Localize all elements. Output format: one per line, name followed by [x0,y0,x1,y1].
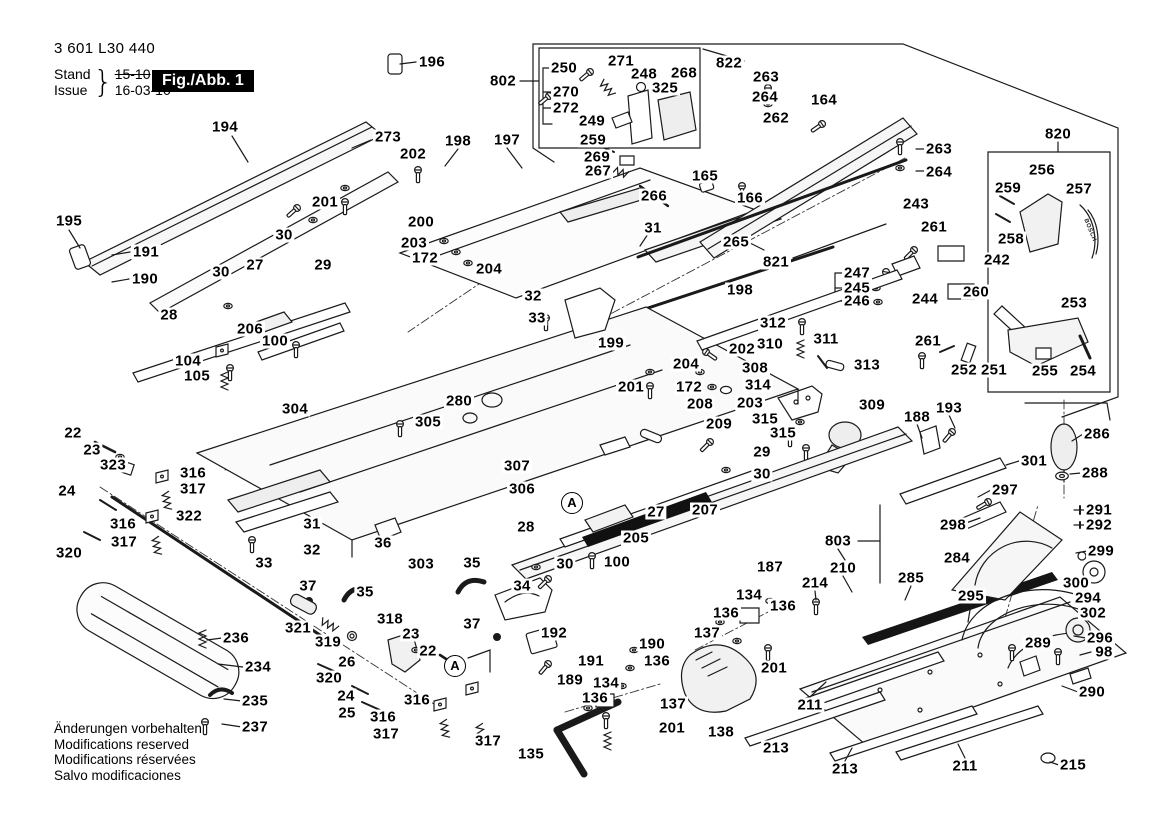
part-callout-30: 30 [554,557,575,572]
footer-line-es: Salvo modificaciones [54,768,202,784]
part-callout-201: 201 [657,721,687,736]
part-callout-201: 201 [310,195,340,210]
part-callout-255: 255 [1030,364,1060,379]
part-callout-306: 306 [507,482,537,497]
part-callout-36: 36 [372,536,393,551]
part-callout-320: 320 [314,671,344,686]
part-callout-187: 187 [755,560,785,575]
part-callout-204: 204 [671,357,701,372]
part-callout-166: 166 [735,191,765,206]
part-callout-257: 257 [1064,182,1094,197]
part-callout-193: 193 [934,401,964,416]
part-callout-105: 105 [182,369,212,384]
part-callout-235: 235 [240,694,270,709]
part-callout-211: 211 [795,698,824,713]
part-callout-300: 300 [1061,576,1091,591]
part-callout-311: 311 [811,332,840,347]
part-callout-201: 201 [616,380,646,395]
part-callout-307: 307 [502,459,532,474]
part-callout-213: 213 [830,762,860,777]
part-callout-23: 23 [81,443,102,458]
part-callout-35: 35 [461,556,482,571]
part-callout-268: 268 [669,66,699,81]
part-callout-250: 250 [549,61,579,76]
part-callout-191: 191 [131,245,161,260]
part-callout-288: 288 [1080,466,1110,481]
part-callout-299: 299 [1086,544,1116,559]
part-callout-280: 280 [444,394,474,409]
part-callout-188: 188 [902,410,932,425]
part-callout-286: 286 [1082,427,1112,442]
footer-line-fr: Modifications réservées [54,752,202,768]
part-callout-263: 263 [924,142,954,157]
part-callout-259: 259 [993,181,1023,196]
part-callout-198: 198 [725,283,755,298]
part-callout-208: 208 [685,397,715,412]
part-callout-305: 305 [413,415,443,430]
part-callout-31: 31 [642,221,663,236]
part-callout-207: 207 [690,503,720,518]
part-callout-316: 316 [402,693,432,708]
footer-line-en: Modifications reserved [54,737,202,753]
part-callout-256: 256 [1027,163,1057,178]
part-callout-310: 310 [755,337,785,352]
part-callout-246: 246 [842,294,872,309]
part-number: 3 601 L30 440 [54,40,171,57]
part-callout-253: 253 [1059,296,1089,311]
part-callout-319: 319 [313,635,343,650]
part-callout-24: 24 [56,484,77,499]
part-callout-284: 284 [942,551,972,566]
part-callout-136: 136 [642,654,672,669]
part-callout-318: 318 [375,612,405,627]
part-callout-199: 199 [596,336,626,351]
part-callout-24: 24 [335,689,356,704]
part-callout-164: 164 [809,93,839,108]
part-callout-321: 321 [283,621,313,636]
part-callout-26: 26 [336,655,357,670]
part-callout-205: 205 [621,531,651,546]
part-callout-242: 242 [982,253,1012,268]
part-callout-303: 303 [406,557,436,572]
brace-glyph: } [94,69,113,96]
part-callout-312: 312 [758,316,788,331]
part-callout-323: 323 [98,458,128,473]
part-callout-29: 29 [312,258,333,273]
part-callout-32: 32 [522,289,543,304]
part-callout-317: 317 [178,482,208,497]
part-callout-190: 190 [130,272,160,287]
part-callout-191: 191 [576,654,606,669]
part-callout-234: 234 [243,660,273,675]
assembly-marker-A: A [561,492,583,514]
part-callout-189: 189 [555,673,585,688]
part-callout-251: 251 [979,363,1009,378]
part-callout-98: 98 [1093,645,1114,660]
part-callout-137: 137 [692,626,722,641]
part-callout-322: 322 [174,509,204,524]
part-callout-100: 100 [260,334,290,349]
part-callout-325: 325 [650,81,680,96]
part-callout-298: 298 [938,518,968,533]
part-callout-37: 37 [297,579,318,594]
part-callout-215: 215 [1058,758,1088,773]
part-callout-28: 28 [515,520,536,535]
part-callout-35: 35 [354,585,375,600]
part-callout-136: 136 [580,691,610,706]
part-callout-258: 258 [996,232,1026,247]
part-callout-260: 260 [961,285,991,300]
part-callout-313: 313 [852,358,882,373]
part-callout-202: 202 [727,342,757,357]
part-callout-263: 263 [751,70,781,85]
part-callout-209: 209 [704,417,734,432]
part-callout-254: 254 [1068,364,1098,379]
part-callout-210: 210 [828,561,858,576]
assembly-marker-A: A [444,655,466,677]
part-callout-28: 28 [158,308,179,323]
part-callout-203: 203 [399,236,429,251]
part-callout-104: 104 [173,354,203,369]
part-callout-195: 195 [54,214,84,229]
part-callout-214: 214 [800,576,830,591]
part-callout-25: 25 [336,706,357,721]
part-callout-261: 261 [919,220,949,235]
part-callout-320: 320 [54,546,84,561]
part-callout-31: 31 [301,517,322,532]
part-callout-266: 266 [639,189,669,204]
part-callout-261: 261 [913,334,943,349]
part-callout-317: 317 [371,727,401,742]
footer-line-de: Änderungen vorbehalten [54,721,202,737]
part-callout-317: 317 [109,535,139,550]
part-callout-820: 820 [1043,127,1073,142]
part-callout-294: 294 [1073,591,1103,606]
part-callout-289: 289 [1023,636,1053,651]
part-callout-314: 314 [743,378,773,393]
part-callout-136: 136 [711,606,741,621]
part-callout-267: 267 [583,164,613,179]
part-callout-291: 291 [1084,503,1114,518]
part-callout-27: 27 [645,505,666,520]
part-callout-172: 172 [674,380,704,395]
figure-label: Fig./Abb. 1 [152,70,254,92]
part-callout-136: 136 [768,599,798,614]
part-callout-30: 30 [751,467,772,482]
part-callout-297: 297 [990,483,1020,498]
part-callout-316: 316 [108,517,138,532]
part-callout-202: 202 [398,147,428,162]
part-callout-292: 292 [1084,518,1114,533]
part-callout-194: 194 [210,120,240,135]
part-callout-309: 309 [857,398,887,413]
part-callout-273: 273 [373,130,403,145]
exploded-parts-diagram: 3 601 L30 440 Stand Issue } 15-10 16-03-… [0,0,1166,824]
part-callout-304: 304 [280,402,310,417]
part-callout-196: 196 [417,55,447,70]
part-callout-22: 22 [417,644,438,659]
part-callout-33: 33 [253,556,274,571]
part-callout-165: 165 [690,169,720,184]
part-callout-172: 172 [410,251,440,266]
part-callout-249: 249 [577,114,607,129]
part-callout-192: 192 [539,626,569,641]
part-callout-29: 29 [751,445,772,460]
part-callout-247: 247 [842,266,872,281]
part-callout-190: 190 [637,637,667,652]
part-callout-30: 30 [273,228,294,243]
footer-disclaimer: Änderungen vorbehalten Modifications res… [54,721,202,783]
part-callout-134: 134 [591,676,621,691]
part-callout-822: 822 [714,56,744,71]
part-callout-290: 290 [1077,685,1107,700]
part-callout-200: 200 [406,215,436,230]
part-callout-22: 22 [62,426,83,441]
part-callout-37: 37 [461,617,482,632]
part-callout-33: 33 [526,311,547,326]
part-callout-23: 23 [400,627,421,642]
part-callout-802: 802 [488,74,518,89]
part-callout-259: 259 [578,133,608,148]
part-callout-30: 30 [210,265,231,280]
part-callout-270: 270 [551,85,581,100]
part-callout-213: 213 [761,741,791,756]
issue-label: Issue [54,82,91,98]
part-callout-204: 204 [474,262,504,277]
part-callout-236: 236 [221,631,251,646]
part-callout-264: 264 [750,90,780,105]
part-callout-203: 203 [735,396,765,411]
part-callout-244: 244 [910,292,940,307]
part-callout-243: 243 [901,197,931,212]
part-callout-34: 34 [511,579,532,594]
part-callout-315: 315 [768,426,798,441]
part-callout-308: 308 [740,361,770,376]
stand-label: Stand [54,66,91,82]
part-callout-100: 100 [602,555,632,570]
part-callout-32: 32 [301,543,322,558]
part-callout-316: 316 [178,466,208,481]
part-callout-301: 301 [1019,454,1049,469]
part-callout-821: 821 [761,255,791,270]
part-callout-134: 134 [734,588,764,603]
part-callout-316: 316 [368,710,398,725]
part-callout-197: 197 [492,133,522,148]
part-callout-135: 135 [516,747,546,762]
part-callout-264: 264 [924,165,954,180]
part-callout-252: 252 [949,363,979,378]
part-callout-237: 237 [240,720,270,735]
part-callout-317: 317 [473,734,503,749]
part-callout-803: 803 [823,534,853,549]
part-callout-201: 201 [759,661,789,676]
part-callout-285: 285 [896,571,926,586]
part-callout-262: 262 [761,111,791,126]
part-callout-211: 211 [950,759,979,774]
part-callout-137: 137 [658,697,688,712]
part-callout-138: 138 [706,725,736,740]
part-callout-295: 295 [956,589,986,604]
part-callout-302: 302 [1078,606,1108,621]
part-callout-265: 265 [721,235,751,250]
part-callout-198: 198 [443,134,473,149]
part-callout-27: 27 [244,258,265,273]
